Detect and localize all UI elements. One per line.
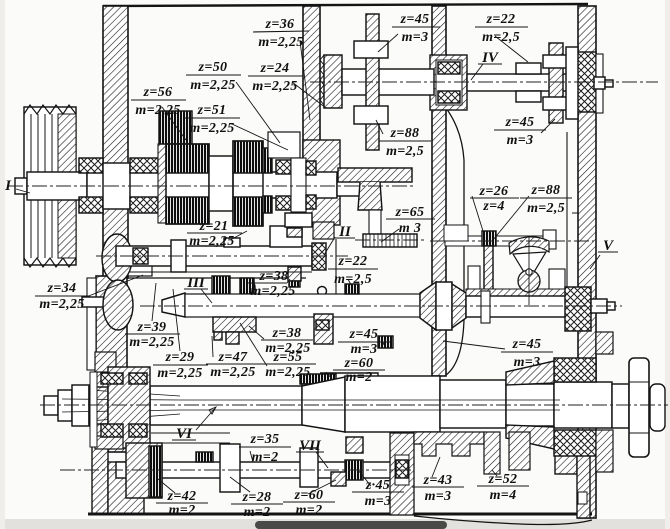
svg-text:m=2,5: m=2,5 bbox=[386, 144, 424, 159]
svg-text:m=3: m=3 bbox=[514, 355, 541, 370]
svg-text:m=2,5: m=2,5 bbox=[482, 30, 520, 45]
svg-text:z=88: z=88 bbox=[531, 183, 561, 198]
svg-text:m=2,25: m=2,25 bbox=[265, 365, 310, 380]
svg-text:z=88: z=88 bbox=[390, 126, 420, 141]
svg-text:m=3: m=3 bbox=[402, 30, 429, 45]
svg-text:z=34: z=34 bbox=[47, 281, 77, 296]
svg-text:m=3: m=3 bbox=[365, 494, 392, 509]
svg-text:m=2,25: m=2,25 bbox=[189, 234, 234, 249]
svg-text:m=2,25: m=2,25 bbox=[189, 121, 234, 136]
svg-text:z=43: z=43 bbox=[423, 473, 453, 488]
svg-text:m=2,25: m=2,25 bbox=[39, 297, 84, 312]
svg-text:z=22: z=22 bbox=[338, 254, 368, 269]
svg-text:m=4: m=4 bbox=[490, 488, 517, 503]
svg-text:z=42: z=42 bbox=[167, 489, 197, 504]
svg-text:z=22: z=22 bbox=[486, 12, 516, 27]
svg-text:z=26: z=26 bbox=[479, 184, 509, 199]
svg-text:m=3: m=3 bbox=[507, 133, 534, 148]
svg-text:I: I bbox=[4, 178, 12, 194]
svg-text:z=35: z=35 bbox=[250, 432, 280, 447]
svg-text:m=3: m=3 bbox=[425, 489, 452, 504]
svg-text:z=65: z=65 bbox=[395, 205, 425, 220]
svg-text:m=2,25: m=2,25 bbox=[250, 284, 295, 299]
svg-text:m=2,25: m=2,25 bbox=[252, 79, 297, 94]
svg-text:z=4: z=4 bbox=[482, 199, 504, 214]
svg-text:z·45: z·45 bbox=[365, 478, 390, 493]
svg-text:z=51: z=51 bbox=[197, 103, 227, 118]
svg-text:z=45: z=45 bbox=[505, 115, 535, 130]
svg-text:z=29: z=29 bbox=[165, 350, 195, 365]
svg-text:m=2,25: m=2,25 bbox=[157, 366, 202, 381]
svg-text:m=2: m=2 bbox=[346, 370, 373, 385]
svg-text:z=38: z=38 bbox=[259, 269, 289, 284]
svg-text:m=2,25: m=2,25 bbox=[258, 35, 303, 50]
svg-text:z=60: z=60 bbox=[344, 356, 374, 371]
svg-text:m=2,25: m=2,25 bbox=[210, 365, 255, 380]
svg-text:z=60: z=60 bbox=[294, 488, 324, 503]
svg-text:m=2: m=2 bbox=[296, 503, 323, 518]
svg-text:m=2: m=2 bbox=[169, 503, 196, 518]
svg-text:z=36: z=36 bbox=[265, 17, 295, 32]
svg-text:z=52: z=52 bbox=[488, 472, 518, 487]
svg-text:m=2,25: m=2,25 bbox=[129, 335, 174, 350]
svg-text:z=39: z=39 bbox=[137, 320, 167, 335]
svg-text:z=45: z=45 bbox=[349, 327, 379, 342]
svg-text:z=45: z=45 bbox=[512, 337, 542, 352]
svg-text:m=3: m=3 bbox=[351, 342, 378, 357]
svg-text:m 3: m 3 bbox=[399, 221, 421, 236]
svg-text:m=2,5: m=2,5 bbox=[527, 201, 565, 216]
svg-text:z=56: z=56 bbox=[143, 85, 173, 100]
svg-text:m=2,25: m=2,25 bbox=[135, 103, 180, 118]
svg-text:z=47: z=47 bbox=[218, 350, 248, 365]
svg-text:z=55: z=55 bbox=[273, 350, 303, 365]
svg-text:z=38: z=38 bbox=[272, 326, 302, 341]
svg-text:m=2,5: m=2,5 bbox=[334, 272, 372, 287]
svg-text:m=2,25: m=2,25 bbox=[190, 78, 235, 93]
svg-text:z=50: z=50 bbox=[198, 60, 228, 75]
svg-text:z=28: z=28 bbox=[242, 490, 272, 505]
svg-text:m=2: m=2 bbox=[252, 450, 279, 465]
svg-text:z=45: z=45 bbox=[400, 12, 430, 27]
svg-text:m=2: m=2 bbox=[244, 505, 271, 520]
svg-text:z=21: z=21 bbox=[199, 219, 229, 234]
svg-text:z=24: z=24 bbox=[260, 61, 290, 76]
